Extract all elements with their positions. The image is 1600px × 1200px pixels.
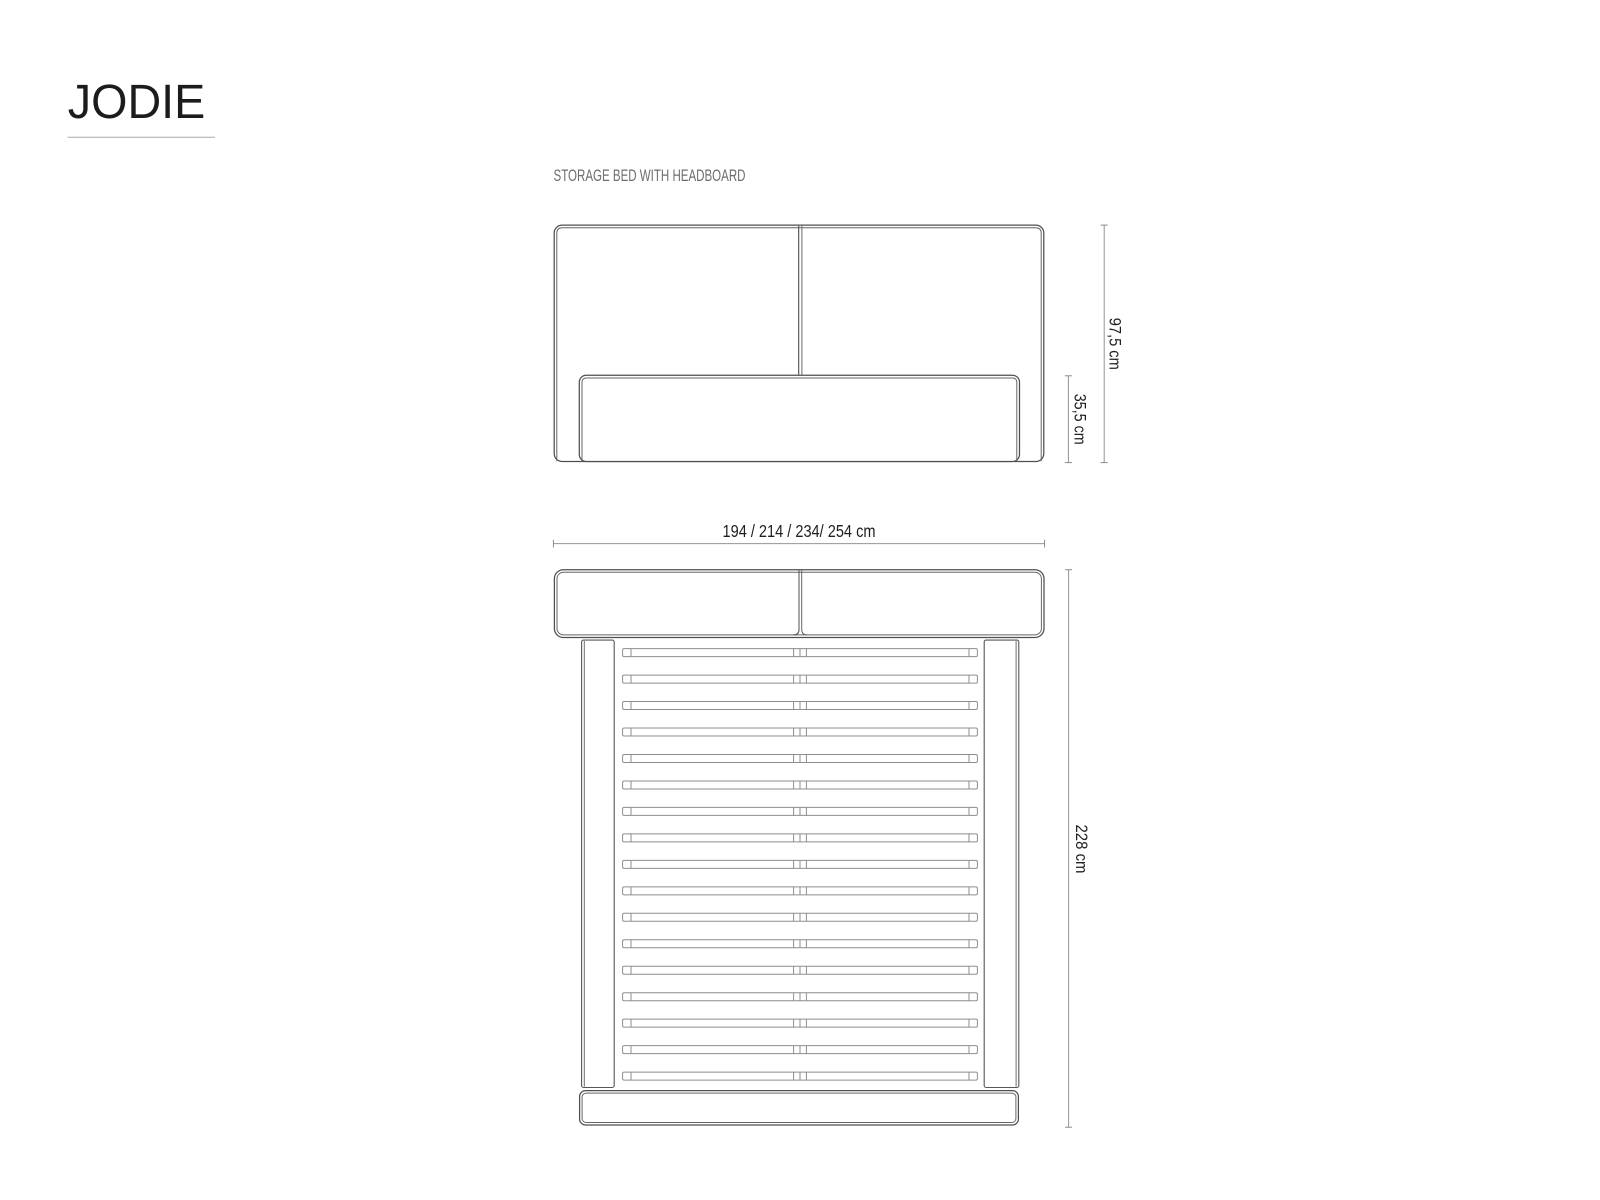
svg-text:JODIE: JODIE [68, 76, 206, 129]
svg-text:35,5 cm: 35,5 cm [1070, 394, 1088, 445]
svg-text:194 / 214 / 234/ 254 cm: 194 / 214 / 234/ 254 cm [723, 521, 876, 541]
svg-text:97,5 cm: 97,5 cm [1105, 318, 1123, 370]
svg-text:228 cm: 228 cm [1072, 825, 1090, 874]
svg-text:STORAGE BED WITH HEADBOARD: STORAGE BED WITH HEADBOARD [554, 167, 746, 185]
